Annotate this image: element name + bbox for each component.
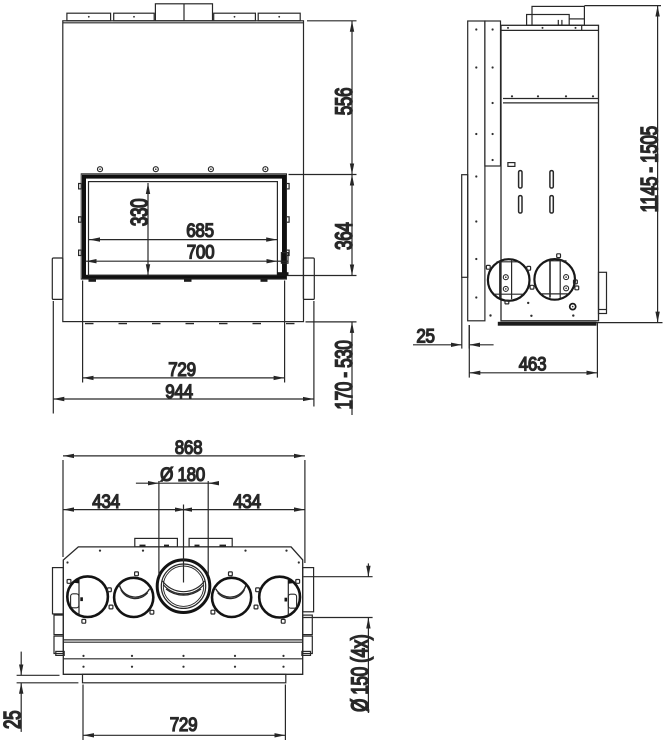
svg-text:868: 868 — [175, 437, 203, 458]
svg-text:729: 729 — [168, 359, 196, 380]
svg-text:1145 - 1505: 1145 - 1505 — [637, 126, 663, 212]
svg-text:Ø 180: Ø 180 — [160, 464, 205, 485]
svg-text:25: 25 — [0, 711, 26, 729]
svg-text:170 - 530: 170 - 530 — [331, 340, 357, 409]
svg-text:700: 700 — [187, 242, 215, 263]
svg-text:25: 25 — [416, 325, 435, 346]
svg-text:330: 330 — [127, 199, 153, 226]
svg-text:944: 944 — [165, 381, 193, 402]
svg-text:729: 729 — [170, 714, 198, 735]
svg-text:463: 463 — [519, 354, 547, 375]
svg-text:434: 434 — [233, 491, 261, 512]
svg-text:434: 434 — [92, 491, 120, 512]
svg-text:Ø 150 (4x): Ø 150 (4x) — [347, 635, 373, 712]
svg-text:556: 556 — [331, 88, 357, 115]
svg-text:364: 364 — [331, 222, 357, 249]
svg-text:685: 685 — [186, 220, 214, 241]
